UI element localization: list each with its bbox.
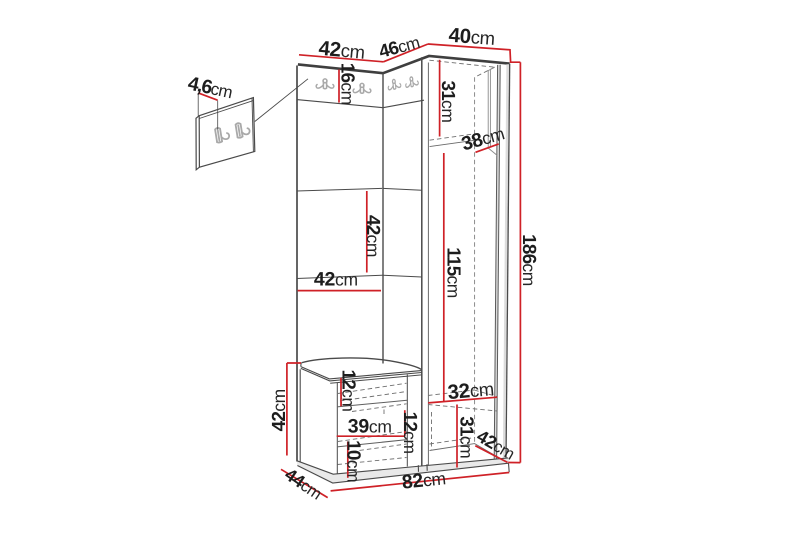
- svg-text:12cm: 12cm: [399, 412, 420, 454]
- svg-text:42cm: 42cm: [318, 37, 366, 64]
- svg-text:4,6cm: 4,6cm: [186, 72, 235, 103]
- svg-text:31cm: 31cm: [456, 416, 477, 458]
- svg-text:46cm: 46cm: [377, 31, 422, 62]
- svg-text:31cm: 31cm: [437, 80, 458, 122]
- svg-text:40cm: 40cm: [448, 24, 496, 50]
- svg-text:186cm: 186cm: [518, 234, 539, 286]
- svg-text:42cm: 42cm: [362, 215, 383, 257]
- svg-text:39cm: 39cm: [348, 415, 392, 437]
- svg-text:12cm: 12cm: [338, 369, 359, 411]
- svg-text:115cm: 115cm: [443, 247, 464, 298]
- svg-text:10cm: 10cm: [343, 440, 364, 482]
- svg-text:42cm: 42cm: [269, 389, 290, 431]
- svg-text:82cm: 82cm: [401, 467, 447, 493]
- svg-text:42cm: 42cm: [314, 268, 358, 290]
- svg-text:16cm: 16cm: [336, 63, 357, 105]
- svg-text:32cm: 32cm: [447, 377, 495, 404]
